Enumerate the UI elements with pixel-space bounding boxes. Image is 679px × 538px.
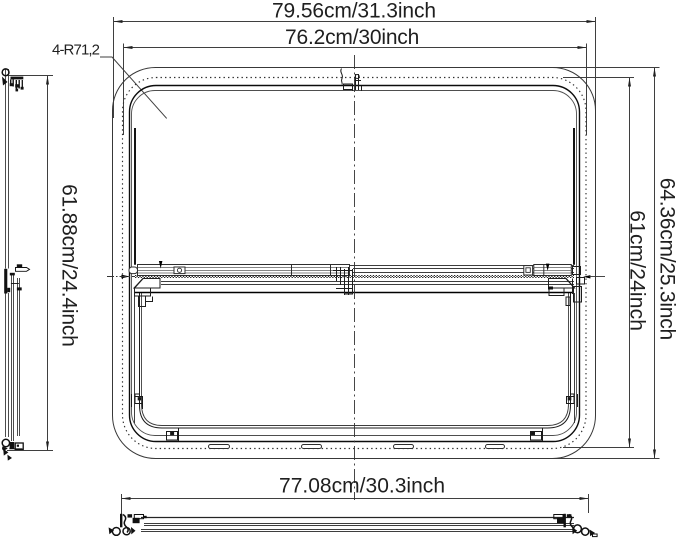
svg-text:4-R71,2: 4-R71,2	[52, 42, 100, 59]
svg-text:61cm/24inch: 61cm/24inch	[626, 210, 649, 331]
svg-text:61.88cm/24.4inch: 61.88cm/24.4inch	[58, 184, 81, 347]
svg-text:64.36cm/25.3inch: 64.36cm/25.3inch	[656, 178, 679, 340]
svg-text:79.56cm/31.3inch: 79.56cm/31.3inch	[272, 0, 436, 23]
svg-text:77.08cm/30.3inch: 77.08cm/30.3inch	[279, 474, 445, 497]
svg-text:76.2cm/30inch: 76.2cm/30inch	[285, 26, 419, 49]
